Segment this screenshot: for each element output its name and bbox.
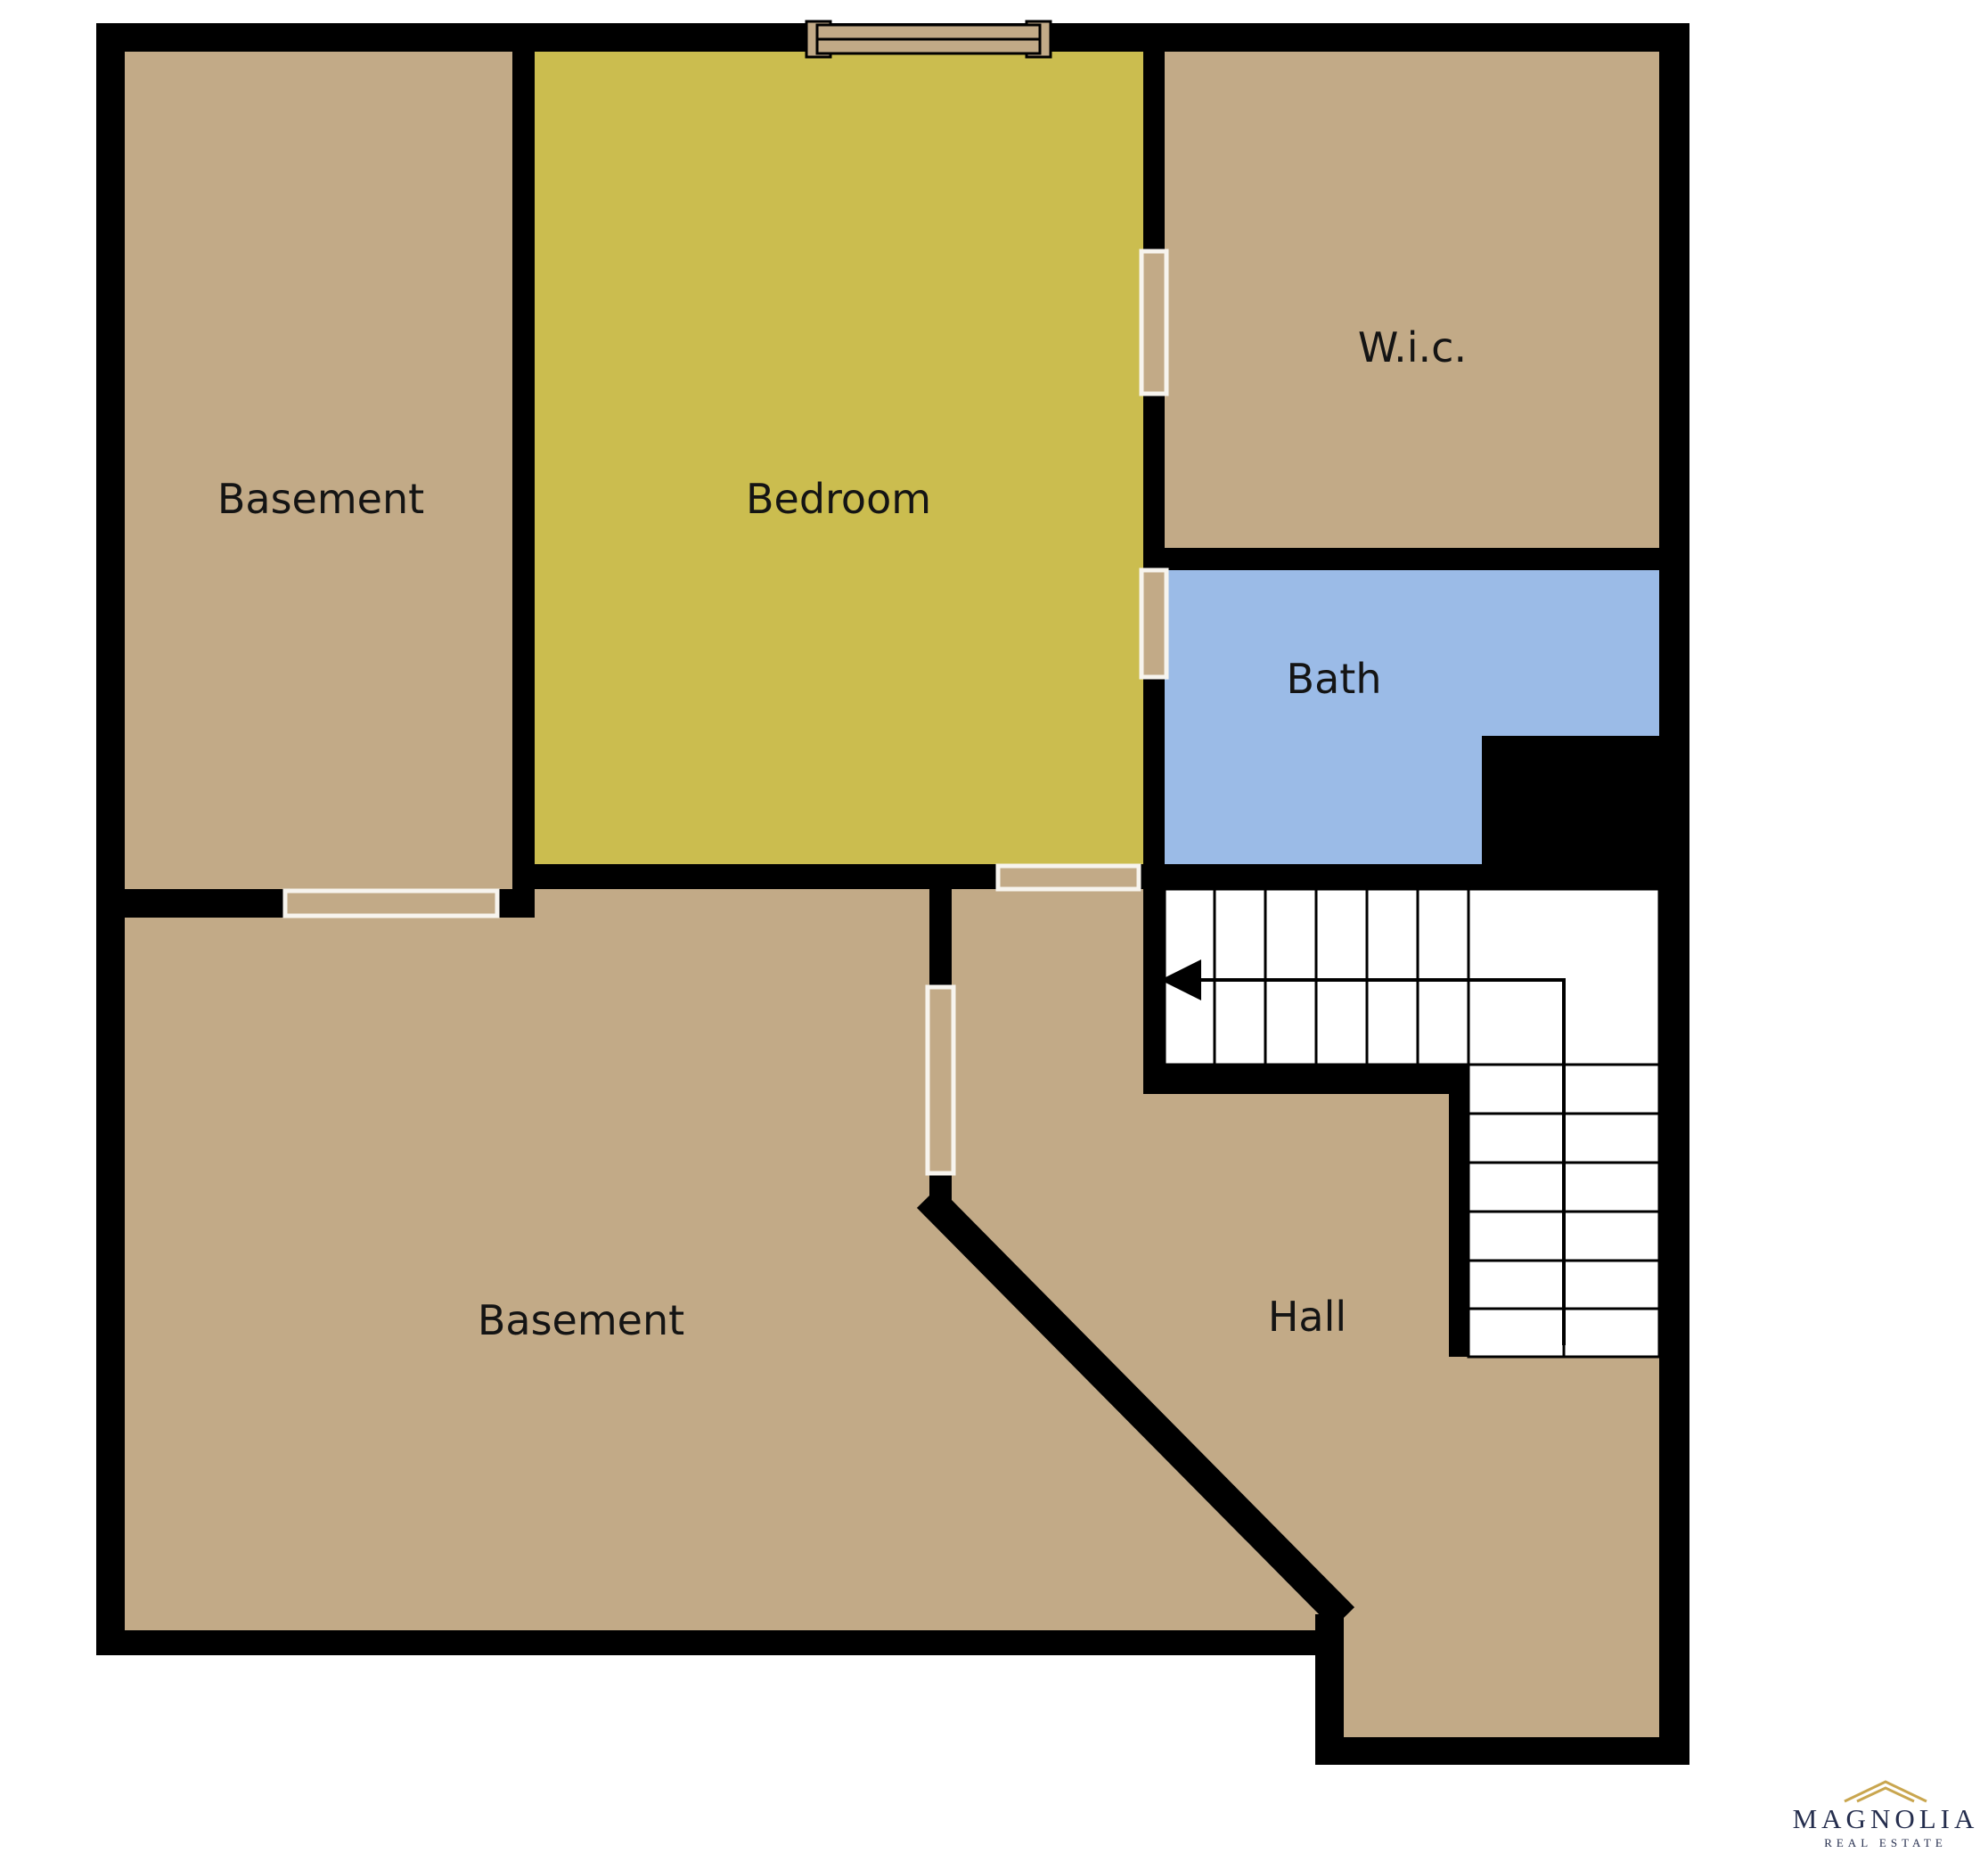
room-bath-label: Bath <box>1287 655 1382 703</box>
magnolia-logo: MAGNOLIA REAL ESTATE <box>1782 1778 1988 1849</box>
room-bedroom-floor <box>535 52 1143 866</box>
room-hall-label: Hall <box>1268 1293 1346 1341</box>
brand-tagline: REAL ESTATE <box>1782 1837 1988 1849</box>
magnolia-roof-icon <box>1839 1778 1932 1803</box>
window-basement <box>285 891 497 916</box>
wall-basement-divider-v <box>512 52 535 918</box>
wall-wic-bottom <box>1165 548 1659 570</box>
door-bath <box>1141 570 1166 677</box>
room-wic-floor <box>1165 52 1659 548</box>
room-wic-label: W.i.c. <box>1358 323 1467 371</box>
wall-stair-lower-left <box>1449 1065 1469 1357</box>
door-bedroom-hall <box>998 866 1139 889</box>
room-basement-upper-label: Basement <box>217 475 424 523</box>
room-basement-lower-label: Basement <box>478 1296 684 1344</box>
door-wic <box>1141 251 1166 394</box>
wall-outer-right <box>1659 23 1689 1765</box>
stairs-upper-run <box>1165 889 1659 1065</box>
room-basement-upper-floor <box>125 52 512 889</box>
wall-stair-bottom <box>1143 1065 1469 1094</box>
brand-name: MAGNOLIA <box>1782 1805 1988 1833</box>
wall-hall-bottom <box>1315 1737 1689 1765</box>
wall-outer-left <box>96 23 125 1655</box>
wall-bath-notch <box>1482 736 1659 889</box>
floorplan-drawing: BasementBedroomW.i.c.BathBasementHall <box>0 0 1988 1853</box>
wall-basement-lower-bottom <box>96 1630 1344 1655</box>
door-hall <box>928 987 953 1173</box>
room-bedroom-label: Bedroom <box>746 475 931 523</box>
floorplan-page: BasementBedroomW.i.c.BathBasementHall MA… <box>0 0 1988 1853</box>
